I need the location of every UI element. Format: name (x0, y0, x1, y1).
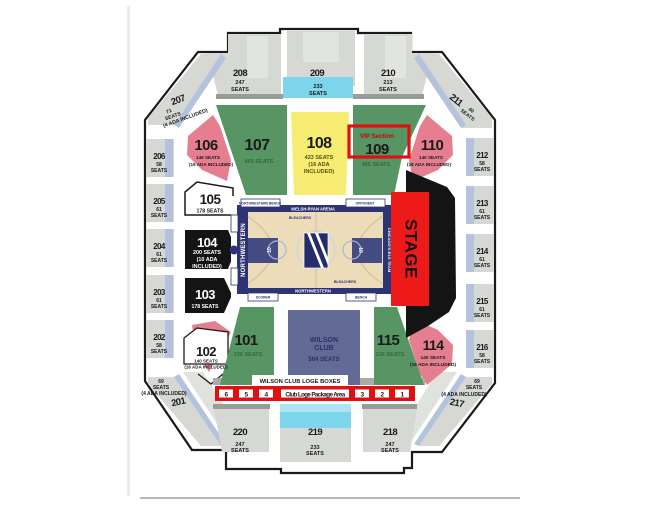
svg-text:WELSH-RYAN ARENA: WELSH-RYAN ARENA (291, 207, 335, 212)
svg-text:VIP Section: VIP Section (360, 133, 394, 140)
svg-text:210: 210 (381, 68, 395, 79)
svg-text:423 SEATS: 423 SEATS (305, 155, 334, 161)
svg-text:10: 10 (267, 247, 273, 253)
svg-text:SEATS: SEATS (474, 263, 491, 269)
svg-text:204: 204 (153, 242, 166, 251)
svg-text:(10 ADA: (10 ADA (197, 257, 218, 263)
svg-text:213: 213 (383, 80, 392, 86)
svg-text:208: 208 (233, 68, 247, 79)
svg-text:BENCH: BENCH (355, 296, 368, 300)
svg-text:103: 103 (195, 287, 215, 302)
svg-text:215: 215 (476, 297, 489, 306)
svg-text:SEATS: SEATS (151, 258, 168, 264)
svg-text:219: 219 (308, 427, 322, 438)
svg-text:104: 104 (197, 235, 218, 250)
svg-text:(16 ADA INCLUDED): (16 ADA INCLUDED) (410, 362, 456, 368)
svg-text:203: 203 (153, 288, 166, 297)
svg-text:SEATS: SEATS (474, 359, 491, 365)
svg-text:140 SEATS: 140 SEATS (419, 155, 443, 160)
svg-text:SEATS: SEATS (306, 451, 324, 457)
svg-text:10: 10 (357, 247, 363, 253)
svg-text:(18 ADA INCLUDED): (18 ADA INCLUDED) (407, 162, 452, 167)
svg-text:209: 209 (310, 68, 324, 79)
svg-text:SEATS: SEATS (474, 313, 491, 319)
svg-text:SEATS: SEATS (379, 87, 397, 93)
svg-text:108: 108 (307, 135, 333, 152)
svg-text:247: 247 (235, 80, 244, 86)
svg-text:178 SEATS: 178 SEATS (196, 209, 224, 215)
svg-text:107: 107 (245, 137, 271, 154)
svg-text:SEATS: SEATS (474, 215, 491, 221)
svg-text:148 SEATS: 148 SEATS (196, 155, 220, 160)
svg-text:SEATS: SEATS (466, 385, 483, 391)
svg-text:114: 114 (423, 337, 445, 353)
svg-text:115: 115 (377, 332, 400, 349)
svg-text:SEATS: SEATS (151, 168, 168, 174)
svg-text:140 SEATS: 140 SEATS (421, 355, 447, 361)
svg-text:205: 205 (153, 197, 166, 206)
svg-text:214: 214 (476, 247, 489, 256)
svg-text:SEATS: SEATS (151, 304, 168, 310)
svg-text:SEATS: SEATS (231, 448, 249, 454)
svg-text:465 SEATS: 465 SEATS (245, 159, 274, 165)
svg-text:BLEACHERS: BLEACHERS (289, 216, 312, 220)
svg-text:OPPONENT: OPPONENT (355, 202, 375, 206)
svg-text:SCORER: SCORER (256, 296, 271, 300)
svg-text:SEATS: SEATS (309, 91, 327, 97)
svg-text:216: 216 (476, 343, 489, 352)
svg-text:200 SEATS: 200 SEATS (193, 250, 221, 256)
svg-text:CLUB: CLUB (314, 345, 333, 352)
svg-text:(4 ADA INCLUDED): (4 ADA INCLUDED) (441, 392, 487, 398)
svg-text:101: 101 (234, 332, 257, 349)
svg-text:INCLUDED): INCLUDED) (192, 264, 222, 270)
svg-text:INCLUDED): INCLUDED) (304, 169, 334, 175)
svg-text:NORTHWESTERN: NORTHWESTERN (295, 289, 331, 294)
svg-text:110: 110 (421, 137, 444, 154)
svg-text:(16 ADA INCLUDED): (16 ADA INCLUDED) (184, 365, 228, 370)
svg-text:233: 233 (313, 84, 322, 90)
svg-text:465 SEATS: 465 SEATS (362, 162, 391, 168)
svg-text:178 SEATS: 178 SEATS (191, 304, 219, 310)
svg-text:236 SEATS: 236 SEATS (376, 352, 405, 358)
svg-text:NORTHWESTERN: NORTHWESTERN (241, 223, 247, 277)
svg-text:WILSON CLUB LOGE BOXES: WILSON CLUB LOGE BOXES (260, 379, 341, 385)
svg-text:218: 218 (383, 427, 397, 438)
svg-text:SEATS: SEATS (151, 349, 168, 355)
svg-text:BLEACHERS: BLEACHERS (334, 280, 357, 284)
svg-text:220: 220 (233, 427, 247, 438)
svg-text:202: 202 (153, 333, 166, 342)
svg-text:105: 105 (200, 192, 222, 207)
svg-text:(16 ADA: (16 ADA (308, 162, 329, 168)
svg-text:102: 102 (196, 344, 216, 359)
svg-text:236 SEATS: 236 SEATS (234, 352, 263, 358)
svg-text:SEATS: SEATS (231, 87, 249, 93)
svg-text:212: 212 (476, 151, 489, 160)
svg-text:STAGE: STAGE (402, 219, 421, 279)
svg-text:WILSON: WILSON (310, 337, 338, 344)
svg-text:206: 206 (153, 152, 166, 161)
svg-text:SEATS: SEATS (381, 448, 399, 454)
svg-text:564 SEATS: 564 SEATS (308, 357, 339, 363)
svg-text:SEATS: SEATS (151, 213, 168, 219)
svg-text:109: 109 (365, 141, 388, 158)
svg-text:213: 213 (476, 199, 489, 208)
svg-text:(16 ADA INCLUDED): (16 ADA INCLUDED) (189, 162, 234, 167)
svg-text:106: 106 (194, 137, 217, 154)
svg-text:SEATS: SEATS (474, 167, 491, 173)
svg-text:Club Loge Package Area: Club Loge Package Area (285, 392, 345, 399)
svg-text:NORTHWESTERN BENCH: NORTHWESTERN BENCH (239, 202, 282, 206)
svg-text:140 SEATS: 140 SEATS (194, 359, 217, 364)
